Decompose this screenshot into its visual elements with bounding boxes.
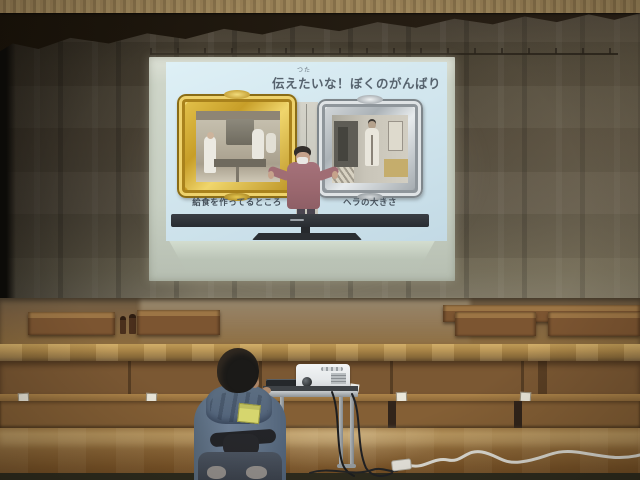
student-foot-left — [207, 466, 226, 479]
cables-overlay — [0, 0, 640, 480]
student-foot-right — [246, 466, 267, 479]
black-cable-2 — [352, 394, 392, 476]
student-head — [217, 348, 259, 393]
gymnasium-photo: つた 伝えたいな！ぼくのがんばり 給食を作ってるところ — [0, 0, 640, 480]
student-name-tag — [237, 403, 261, 424]
extension-cord — [408, 451, 640, 466]
black-cable-1 — [332, 392, 354, 476]
black-cable-tangle — [310, 469, 400, 473]
cord-connector — [391, 459, 411, 471]
